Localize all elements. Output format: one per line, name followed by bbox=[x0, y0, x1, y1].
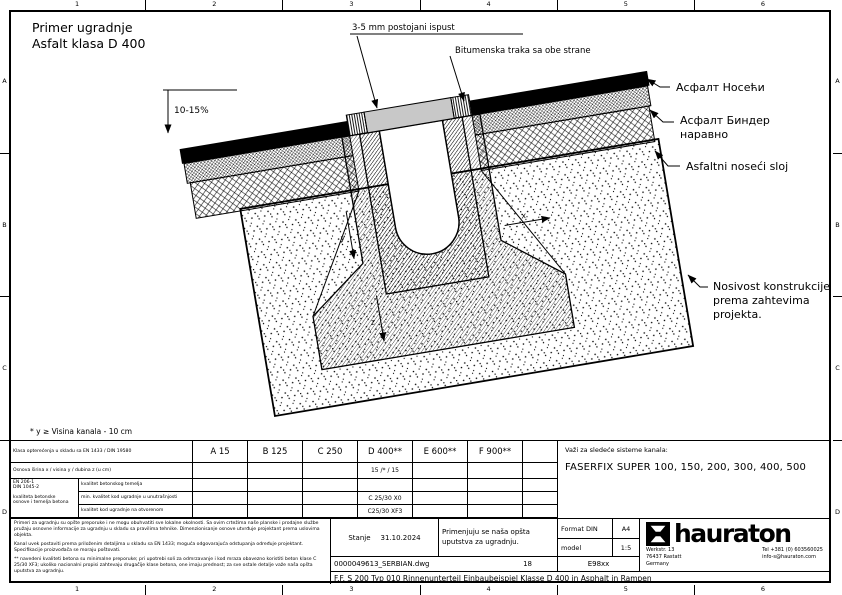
class-e600: E 600** bbox=[413, 441, 468, 463]
cross-section-body: y x z bbox=[179, 65, 694, 424]
company-email: info-s@hauraton.com bbox=[762, 554, 823, 561]
table-cell-empty bbox=[468, 505, 523, 518]
bitumen-tape-left bbox=[346, 112, 367, 136]
company-contact: Tel +381 (0) 603560025 info-s@hauraton.c… bbox=[762, 547, 823, 567]
concrete-row-label: min. kvalitet kod ugradnje u unutrašnjos… bbox=[79, 492, 193, 505]
table-cell-empty bbox=[248, 505, 303, 518]
grid-ref-bottom: 1 2 3 4 5 6 bbox=[9, 585, 831, 595]
bitumen-tape-right bbox=[451, 95, 472, 119]
systems-panel: Važi za sledeće sisteme kanala: FASERFIX… bbox=[558, 441, 829, 518]
installation-cross-section: Primer ugradnje Asfalt klasa D 400 y x bbox=[0, 0, 842, 440]
class-b125: B 125 bbox=[248, 441, 303, 463]
scale-label: model bbox=[558, 539, 613, 557]
file-name: 0000049613_SERBIAN.dwg bbox=[334, 560, 430, 568]
expansion-gap-label: 3-5 mm postojani ispust bbox=[352, 23, 455, 33]
dimension-row-label: Osnova širina x / visina y / dubina z (u… bbox=[11, 463, 193, 479]
table-cell-empty bbox=[303, 505, 358, 518]
table-cell-empty bbox=[413, 505, 468, 518]
drawing-code: E98xx bbox=[558, 557, 640, 572]
format-label: Format DIN bbox=[558, 519, 613, 539]
class-f900: F 900** bbox=[468, 441, 523, 463]
page-title: Primer ugradnje bbox=[32, 20, 133, 35]
concrete-norm-cell: EN 206-1 DIN 1045-2 kvaliteta betonske o… bbox=[11, 479, 79, 518]
concrete-value-outdoor: C25/30 XF3 bbox=[358, 505, 413, 518]
concrete-norm-line: DIN 1045-2 bbox=[13, 485, 76, 490]
company-name: hauraton bbox=[674, 521, 791, 546]
table-cell-empty bbox=[193, 505, 248, 518]
concrete-norm-line: osnove i temelja betona bbox=[13, 500, 76, 505]
subgrade-label-2: prema zahtevima bbox=[713, 294, 810, 307]
drawing-description: F.F. S 200 Typ 010 Rinnenunterteil Einba… bbox=[331, 572, 829, 584]
table-cell-empty bbox=[413, 463, 468, 479]
grid-ref-col: 4 bbox=[421, 585, 558, 595]
asphalt-base-label: Asfaltni noseći sloj bbox=[686, 160, 788, 173]
load-class-row-label: Klasa opterećenja u skladu sa EN 1433 / … bbox=[11, 441, 193, 463]
table-cell-empty bbox=[358, 479, 413, 492]
table-cell-empty bbox=[523, 492, 557, 505]
table-cell-empty bbox=[413, 479, 468, 492]
systems-list: FASERFIX SUPER 100, 150, 200, 300, 400, … bbox=[565, 462, 822, 473]
table-cell-empty bbox=[303, 492, 358, 505]
fine-print-paragraph: ** navedeni kvaliteti betona su minimaln… bbox=[14, 557, 327, 575]
concrete-row-label: kvalitet betonskog temelja bbox=[79, 479, 193, 492]
table-cell-empty bbox=[413, 492, 468, 505]
company-block: hauraton Werkstr. 13 76437 Rastatt Germa… bbox=[640, 519, 829, 572]
status-date: 31.10.2024 bbox=[381, 534, 421, 542]
sheet-number: 18 bbox=[523, 560, 532, 568]
hauraton-logo-icon bbox=[646, 522, 670, 546]
file-cell: 0000049613_SERBIAN.dwg 18 bbox=[331, 557, 558, 572]
footnote: * y ≥ Visina kanala - 10 cm bbox=[30, 427, 132, 436]
class-d400: D 400** bbox=[358, 441, 413, 463]
grid-ref-col: 6 bbox=[695, 585, 831, 595]
table-cell-empty bbox=[248, 463, 303, 479]
grid-ref-col: 1 bbox=[9, 585, 146, 595]
subgrade-label-3: projekta. bbox=[713, 308, 762, 321]
asphalt-binder-label-2: наравно bbox=[680, 128, 728, 141]
company-phone: Tel +381 (0) 603560025 bbox=[762, 547, 823, 554]
asphalt-surface-label: Асфалт Носећи bbox=[676, 81, 765, 94]
table-cell-empty bbox=[468, 492, 523, 505]
fine-print-paragraph: Primeri za ugradnju su opšte preporuke i… bbox=[14, 521, 327, 539]
table-cell-empty bbox=[193, 492, 248, 505]
concrete-row-label: kvalitet kod ugradnje na otvorenom bbox=[79, 505, 193, 518]
fine-print-paragraph: Kanal uvek postaviti prema priloženim de… bbox=[14, 542, 327, 554]
scale-value: 1:5 bbox=[613, 539, 640, 557]
slope-label: 10-15% bbox=[174, 106, 209, 116]
address-line: 76437 Rastatt bbox=[646, 554, 681, 561]
systems-heading: Važi za sledeće sisteme kanala: bbox=[565, 446, 822, 454]
concrete-value-indoor: C 25/30 X0 bbox=[358, 492, 413, 505]
status-cell: Stanje 31.10.2024 bbox=[331, 519, 439, 557]
bitumen-tape-label: Bitumenska traka sa obe strane bbox=[455, 46, 591, 56]
grid-ref-col: 5 bbox=[558, 585, 695, 595]
instruction-cell: Primenjuju se naša opšta uputstva za ugr… bbox=[439, 519, 558, 557]
dimension-value-d400: 15 /* / 15 bbox=[358, 463, 413, 479]
grid-ref-row: D bbox=[833, 441, 842, 584]
table-cell-empty bbox=[523, 441, 557, 463]
table-cell-empty bbox=[248, 479, 303, 492]
asphalt-binder-label-1: Асфалт Биндер bbox=[680, 114, 770, 127]
table-cell-empty bbox=[523, 479, 557, 492]
table-cell-empty bbox=[468, 463, 523, 479]
class-c250: C 250 bbox=[303, 441, 358, 463]
status-label: Stanje bbox=[348, 534, 370, 542]
table-cell-empty bbox=[248, 492, 303, 505]
format-value: A4 bbox=[613, 519, 640, 539]
address-line: Germany bbox=[646, 561, 681, 568]
table-cell-empty bbox=[193, 479, 248, 492]
table-cell-empty bbox=[193, 463, 248, 479]
table-cell-empty bbox=[303, 479, 358, 492]
subgrade-label-1: Nosivost konstrukcije bbox=[713, 280, 830, 293]
title-block: Klasa opterećenja u skladu sa EN 1433 / … bbox=[11, 440, 829, 584]
address-line: Werkstr. 13 bbox=[646, 547, 681, 554]
fine-print: Primeri za ugradnju su opšte preporuke i… bbox=[11, 519, 331, 584]
page-subtitle: Asfalt klasa D 400 bbox=[32, 36, 145, 51]
grid-ref-col: 3 bbox=[283, 585, 420, 595]
class-a15: A 15 bbox=[193, 441, 248, 463]
company-address: Werkstr. 13 76437 Rastatt Germany bbox=[646, 547, 681, 567]
table-cell-empty bbox=[303, 463, 358, 479]
load-class-table: Klasa opterećenja u skladu sa EN 1433 / … bbox=[11, 441, 558, 518]
table-cell-empty bbox=[523, 505, 557, 518]
drawing-sheet: 1 2 3 4 5 6 1 2 3 4 5 6 A B C D A B C D bbox=[0, 0, 842, 595]
table-cell-empty bbox=[468, 479, 523, 492]
table-cell-empty bbox=[523, 463, 557, 479]
grid-ref-row: D bbox=[0, 441, 9, 584]
grid-ref-col: 2 bbox=[146, 585, 283, 595]
title-block-bottom: Primeri za ugradnju su opšte preporuke i… bbox=[11, 519, 829, 584]
